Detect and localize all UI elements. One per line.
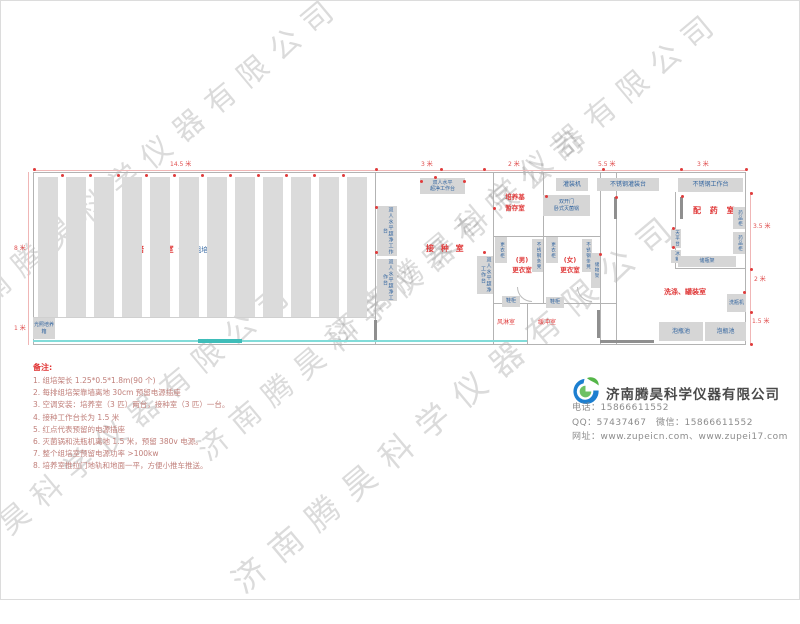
filling-table-box: 不锈钢灌装台: [597, 178, 659, 191]
steel-bench-male: 不锈钢条凳: [532, 239, 543, 272]
list-item: 电话：15866611552: [572, 401, 788, 416]
floor-track-door: [198, 339, 242, 343]
inoculation-room-label: 接 种 室: [426, 244, 466, 254]
floor-track-line: [33, 340, 527, 342]
dim-top-c: 5.5 米: [598, 162, 615, 168]
power-outlet-dot: [434, 176, 437, 179]
power-outlet-dot: [257, 174, 260, 177]
door-arc: [577, 287, 592, 302]
steel-bench-label: 不锈钢条凳: [585, 242, 590, 270]
power-outlet-dot: [313, 174, 316, 177]
wall-dispensing-bottom: [675, 268, 746, 269]
bench-label: 双人水平超净工作台: [480, 256, 491, 294]
door-bottom: [600, 340, 654, 343]
power-outlet-dot: [680, 168, 683, 171]
dispensing-room-label: 配 药 室: [693, 206, 738, 216]
power-outlet-dot: [602, 168, 605, 171]
shelf-column: [179, 177, 199, 317]
autoclave-box: 双开门 卧式灭菌锅: [543, 195, 590, 216]
clean-bench-left-2: 双人水平超净工作台: [377, 259, 397, 301]
list-item: 4. 接种工作台长为 1.5 米: [33, 412, 333, 424]
power-outlet-dot: [483, 168, 486, 171]
door-buffer: [597, 310, 600, 338]
list-item: 7. 整个组培室预留电源功率 >100kw: [33, 448, 333, 460]
storage-rack-box: 储物架: [591, 253, 600, 288]
light-incubator-box: 光照培养箱: [33, 318, 55, 339]
medicine-cabinet-label: 药品柜: [737, 235, 742, 252]
notes-block: 备注: 1. 组培架长 1.25*0.5*1.8m(90 个)2. 每排组培架靠…: [33, 362, 333, 473]
washing-room-label: 洗涤、罐装室: [664, 288, 706, 296]
work-table-box: 不锈钢工作台: [678, 178, 743, 192]
dimension-line-left: [28, 172, 29, 345]
autoclave-line2: 卧式灭菌锅: [554, 206, 579, 212]
culture-room-label: 培 养 室 90个组培架: [136, 245, 215, 255]
power-outlet-dot: [375, 206, 378, 209]
medicine-cabinet-label: 药品柜: [737, 210, 742, 227]
power-outlet-dot: [420, 180, 423, 183]
dim-right-c: 1.5 米: [752, 319, 769, 325]
wall-inoculation-changing: [493, 172, 494, 345]
power-outlet-dot: [173, 174, 176, 177]
medium-line2: 暂存室: [497, 203, 533, 214]
shelf-column: [207, 177, 227, 317]
dim-left-a: 8 米: [14, 246, 26, 252]
power-outlet-dot: [745, 168, 748, 171]
list-item: 6. 灭菌锅和洗瓶机离地 1.5 米，预留 380v 电源。: [33, 436, 333, 448]
clean-bench-right: 双人水平超净工作台: [477, 256, 493, 294]
filling-machine-box: 灌装机: [556, 178, 588, 191]
power-outlet-dot: [33, 168, 36, 171]
power-outlet-dot: [545, 195, 548, 198]
power-outlet-dot: [750, 268, 753, 271]
door-washing: [614, 197, 617, 219]
power-outlet-dot: [483, 251, 486, 254]
power-outlet-dot: [375, 168, 378, 171]
soaking-pool-2: 泡瓶池: [705, 322, 746, 341]
list-item: 3. 空调安装：培养室（3 匹）两台，接种室（3 匹）一台。: [33, 399, 333, 411]
wall-top: [33, 172, 746, 173]
power-outlet-dot: [672, 246, 675, 249]
shelf-column: [122, 177, 142, 317]
shelf-area-bottom-line: [33, 317, 375, 318]
door-culture: [374, 320, 377, 342]
dim-right-b: 2 米: [754, 277, 766, 283]
dim-top-total: 14.5 米: [170, 162, 191, 168]
power-outlet-dot: [375, 251, 378, 254]
shelf-column: [66, 177, 86, 317]
wall-changing-right: [600, 172, 601, 345]
buffer-room-label: 缓冲室: [538, 319, 556, 326]
dim-top-b: 2 米: [508, 162, 520, 168]
storage-rack-label: 储物架: [593, 262, 598, 279]
wall-airshower-buffer: [527, 303, 528, 345]
company-contact: 电话：15866611552QQ：57437467 微信：15866611552…: [572, 401, 788, 445]
floorplan-page: { "watermark": { "text": "济南腾昊科学仪器有限公司" …: [0, 0, 800, 600]
shelf-column: [150, 177, 170, 317]
medium-line1: 培养基: [497, 192, 533, 203]
locker-label: 更衣柜: [499, 242, 504, 259]
medicine-cabinet-1: 药品柜: [733, 207, 745, 229]
list-item: 5. 红点代表预留的电源插座: [33, 424, 333, 436]
dim-top-a: 3 米: [421, 162, 433, 168]
power-outlet-dot: [201, 174, 204, 177]
power-outlet-dot: [89, 174, 92, 177]
power-outlet-dot: [145, 174, 148, 177]
air-shower-label: 风淋室: [497, 319, 515, 326]
list-item: 网址：www.zupeicn.com、www.zupei17.com: [572, 430, 788, 445]
power-outlet-dot: [750, 311, 753, 314]
power-outlet-dot: [440, 168, 443, 171]
list-item: 2. 每排组培架靠墙离地 30cm 预留电源插座: [33, 387, 333, 399]
power-outlet-dot: [229, 174, 232, 177]
company-name: 济南腾昊科学仪器有限公司: [606, 383, 780, 403]
shelf-column: [319, 177, 339, 317]
shelf-column: [291, 177, 311, 317]
dimension-line-top: [33, 170, 746, 171]
shelf-column: [94, 177, 114, 317]
medicine-cabinet-2: 药品柜: [733, 232, 745, 254]
dim-right-a: 3.5 米: [753, 224, 770, 230]
shelf-column: [38, 177, 58, 317]
power-outlet-dot: [599, 253, 602, 256]
shelf-column: [347, 177, 367, 317]
wall-male-female: [543, 172, 544, 304]
list-item: 1. 组培架长 1.25*0.5*1.8m(90 个): [33, 375, 333, 387]
list-item: QQ：57437467 微信：15866611552: [572, 416, 788, 431]
bottle-rack-box: 储瓶架: [678, 256, 736, 267]
dim-left-b: 1 米: [14, 326, 26, 332]
power-outlet-dot: [61, 174, 64, 177]
power-outlet-dot: [117, 174, 120, 177]
balance-table-label: 天平台: [674, 230, 679, 247]
power-outlet-dot: [493, 207, 496, 210]
shoe-cabinet-male: 鞋柜: [502, 296, 520, 307]
shelf-column: [235, 177, 255, 317]
notes-list: 1. 组培架长 1.25*0.5*1.8m(90 个)2. 每排组培架靠墙离地 …: [33, 375, 333, 473]
notes-title: 备注:: [33, 362, 333, 373]
floor-plan: 14.5 米 3 米 2 米 5.5 米 3 米 8 米 1 米 3.5 米 2…: [0, 0, 800, 600]
bench-label: 双人水平超净工作台: [382, 259, 393, 301]
power-outlet-dot: [750, 192, 753, 195]
door-dispensing: [680, 197, 683, 219]
power-outlet-dot: [342, 174, 345, 177]
shoe-cabinet-female: 鞋柜: [546, 297, 564, 308]
power-outlet-dot: [672, 227, 675, 230]
power-outlet-dot: [615, 196, 618, 199]
steel-bench-label: 不锈钢条凳: [535, 242, 540, 270]
bottle-washer-box: 洗瓶机: [727, 294, 746, 312]
power-outlet-dot: [750, 343, 753, 346]
wall-right: [745, 172, 746, 345]
list-item: 8. 培养室推拉门地轨和地面一平，方便小推车推送。: [33, 460, 333, 472]
power-outlet-dot: [681, 195, 684, 198]
medium-storage-label: 培养基 暂存室: [497, 192, 533, 214]
clean-bench-left-1: 双人水平超净工作台: [377, 206, 397, 256]
dim-top-d: 3 米: [697, 162, 709, 168]
power-outlet-dot: [463, 180, 466, 183]
clean-bench-top: 双人水平 超净工作台: [420, 178, 465, 194]
wall-bottom: [33, 344, 746, 345]
power-outlet-dot: [285, 174, 288, 177]
power-outlet-dot: [743, 291, 746, 294]
shelf-column: [263, 177, 283, 317]
soaking-pool-1: 泡瓶池: [659, 322, 703, 341]
bench-line2: 超净工作台: [430, 186, 455, 192]
bench-label: 双人水平超净工作台: [382, 206, 393, 256]
